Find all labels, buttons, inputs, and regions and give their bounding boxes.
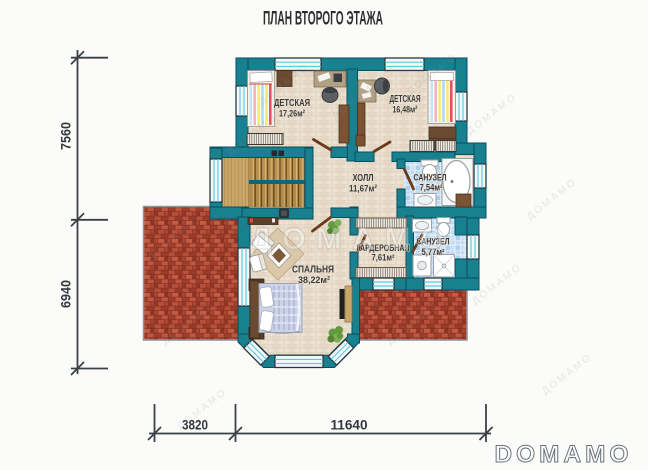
svg-text:7,54м²: 7,54м² <box>420 183 443 193</box>
svg-text:ДОМАМО: ДОМАМО <box>250 221 454 256</box>
svg-text:DOMAMO: DOMAMO <box>495 441 633 468</box>
svg-text:СПАЛЬНЯ: СПАЛЬНЯ <box>292 265 334 276</box>
svg-text:ДЕТСКАЯ: ДЕТСКАЯ <box>390 94 421 105</box>
svg-text:16,48м²: 16,48м² <box>393 105 418 116</box>
svg-text:7560: 7560 <box>59 122 74 150</box>
svg-text:11640: 11640 <box>331 418 368 433</box>
svg-text:11,67м²: 11,67м² <box>349 184 377 195</box>
svg-text:ДЕТСКАЯ: ДЕТСКАЯ <box>274 98 310 109</box>
svg-text:38,22м²: 38,22м² <box>298 275 330 286</box>
svg-text:17,26м²: 17,26м² <box>279 109 305 120</box>
svg-text:ПЛАН ВТОРОГО ЭТАЖА: ПЛАН ВТОРОГО ЭТАЖА <box>263 9 383 30</box>
svg-text:ХОЛЛ: ХОЛЛ <box>353 173 374 184</box>
svg-text:6940: 6940 <box>59 280 74 308</box>
